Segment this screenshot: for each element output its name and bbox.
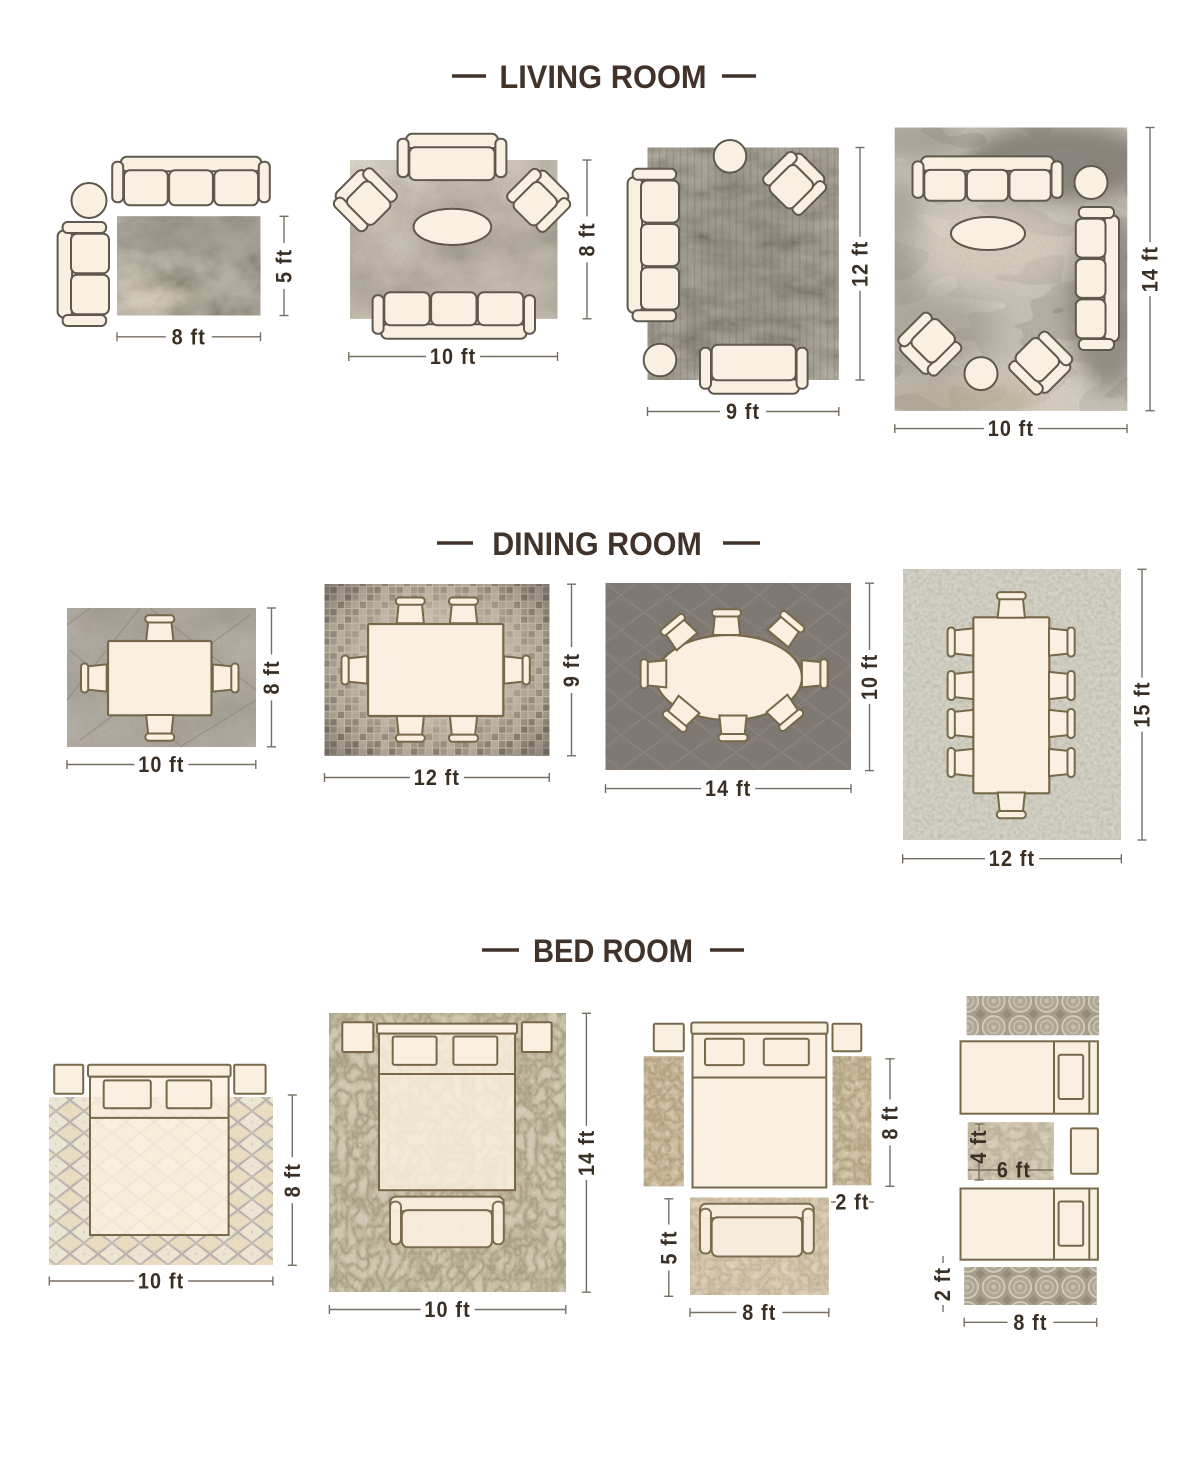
svg-text:8 ft: 8 ft xyxy=(281,1163,305,1197)
svg-text:8 ft: 8 ft xyxy=(260,660,284,694)
svg-text:2 ft: 2 ft xyxy=(835,1190,869,1214)
svg-text:10 ft: 10 ft xyxy=(430,345,476,369)
svg-text:BED ROOM: BED ROOM xyxy=(533,934,693,969)
svg-text:15 ft: 15 ft xyxy=(1130,681,1154,727)
svg-text:10 ft: 10 ft xyxy=(858,654,882,700)
svg-text:8 ft: 8 ft xyxy=(1013,1311,1047,1335)
svg-text:8 ft: 8 ft xyxy=(878,1105,902,1139)
svg-text:5 ft: 5 ft xyxy=(657,1230,681,1264)
svg-text:5 ft: 5 ft xyxy=(272,249,296,283)
svg-text:6 ft: 6 ft xyxy=(997,1158,1031,1182)
svg-text:12 ft: 12 ft xyxy=(414,766,460,790)
svg-text:10 ft: 10 ft xyxy=(138,753,184,777)
svg-text:8 ft: 8 ft xyxy=(172,325,206,349)
svg-text:9 ft: 9 ft xyxy=(560,653,584,687)
svg-text:12 ft: 12 ft xyxy=(848,241,872,287)
svg-text:DINING ROOM: DINING ROOM xyxy=(492,527,702,562)
svg-text:8 ft: 8 ft xyxy=(742,1301,776,1325)
svg-text:10 ft: 10 ft xyxy=(138,1269,184,1293)
svg-text:LIVING ROOM: LIVING ROOM xyxy=(499,60,706,95)
svg-text:9 ft: 9 ft xyxy=(726,400,760,424)
svg-text:14 ft: 14 ft xyxy=(1138,246,1162,292)
svg-text:14 ft: 14 ft xyxy=(575,1130,599,1176)
svg-text:4 ft: 4 ft xyxy=(967,1129,991,1163)
svg-text:8 ft: 8 ft xyxy=(575,222,599,256)
svg-text:10 ft: 10 ft xyxy=(424,1298,470,1322)
svg-text:14 ft: 14 ft xyxy=(705,777,751,801)
svg-text:10 ft: 10 ft xyxy=(988,417,1034,441)
svg-text:12 ft: 12 ft xyxy=(989,847,1035,871)
svg-text:2 ft: 2 ft xyxy=(931,1267,955,1301)
